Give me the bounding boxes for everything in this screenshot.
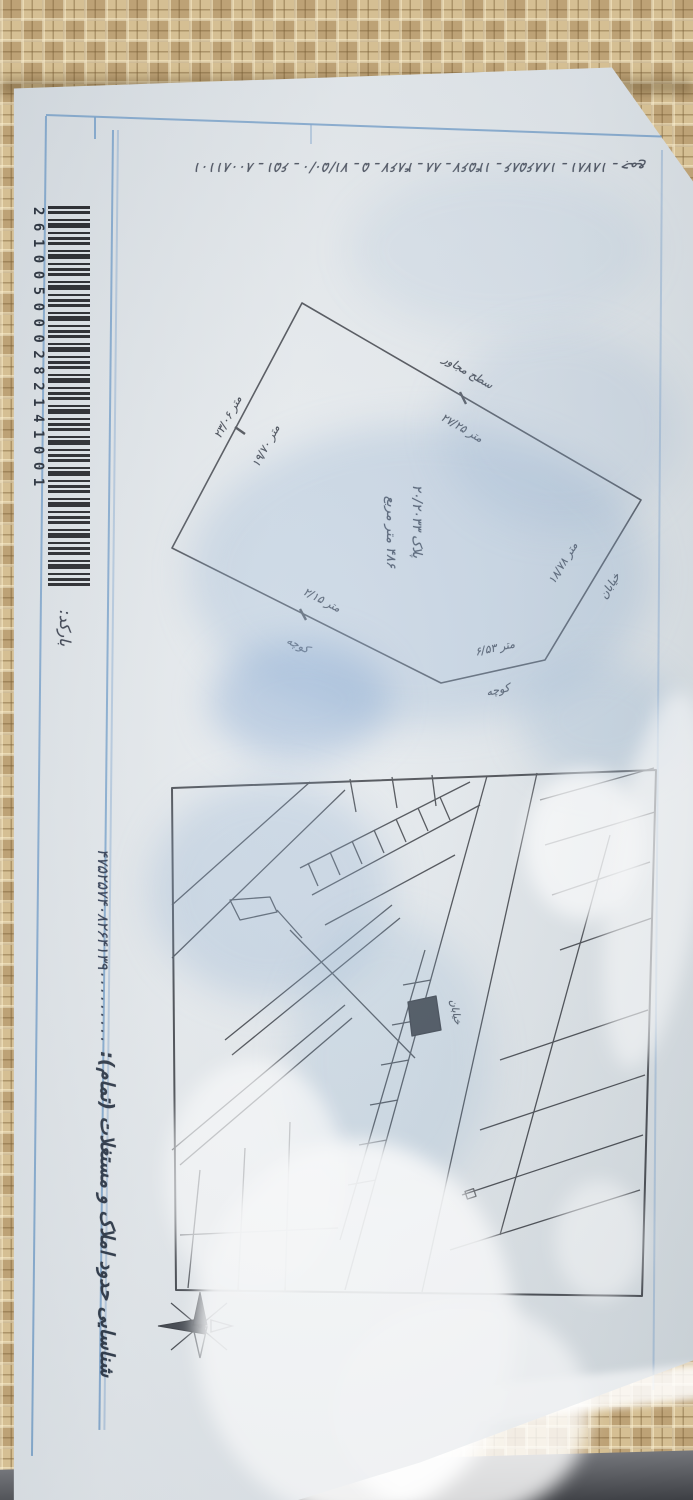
margin-title: شناسایی حدود املاک و مستغلات (تمام): xyxy=(96,1072,118,1377)
form-top-rule-stub-1 xyxy=(94,117,96,139)
plot-area-label: ۴۸۶ متر مربع xyxy=(383,458,398,568)
top-handwritten-annotation: ۸۰۰۸۱۱۰۱ ـ ۶۵۱ ـ ۷۱/۵۰/۰ ـ ۵ ـ ۴۸۶۷ ـ ۸۸… xyxy=(193,159,647,175)
serial-number: ۴۷۵۲۵۷۴۰۸۲۶۴۱۳۹۰۰۰۰۰۰۰۰۰ xyxy=(94,712,112,1042)
barcode-digits: 261005000282141001 xyxy=(30,207,46,591)
barcode-label: بارکد: xyxy=(56,586,74,646)
barcode xyxy=(48,206,90,588)
form-top-rule-stub-2 xyxy=(310,124,312,144)
photo-of-cadastral-document: ۸۰۰۸۱۱۰۱ ـ ۶۵۱ ـ ۷۱/۵۰/۰ ـ ۵ ـ ۴۸۶۷ ـ ۸۸… xyxy=(0,0,693,1500)
plot-number-label: پلاک ۲۰/۲۰۳۳ xyxy=(409,448,424,558)
